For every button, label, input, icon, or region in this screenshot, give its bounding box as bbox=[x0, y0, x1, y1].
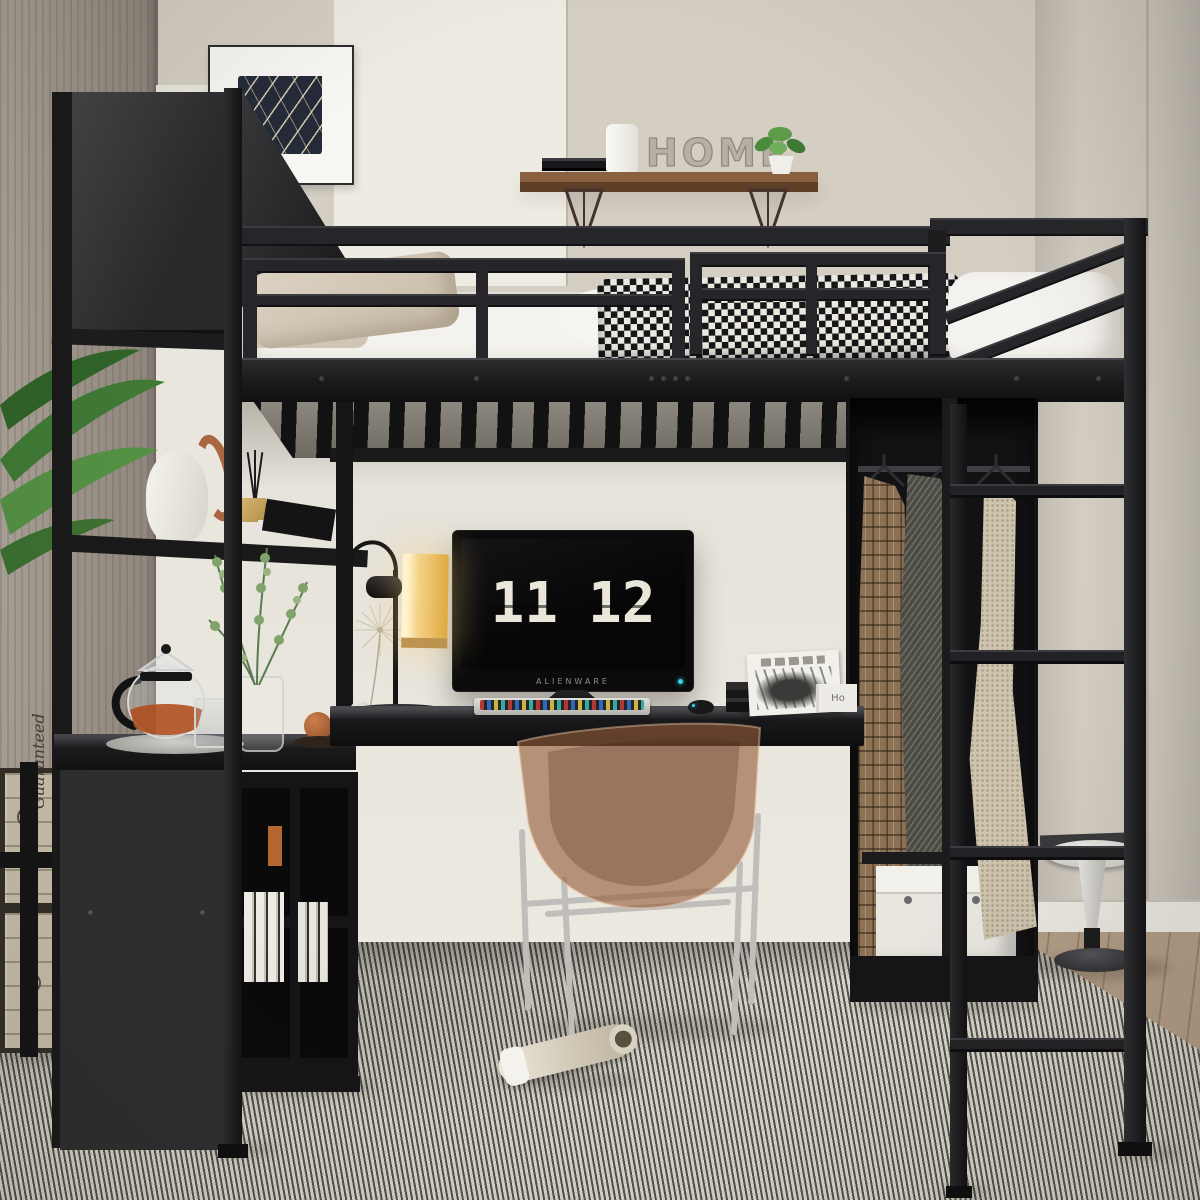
white-books bbox=[244, 892, 284, 982]
guardrail-stile bbox=[806, 252, 817, 356]
screw bbox=[200, 910, 206, 916]
monitor-screen: 11 12 bbox=[461, 539, 685, 669]
power-led bbox=[678, 679, 683, 684]
rivet bbox=[844, 376, 850, 382]
box-clasp bbox=[904, 896, 912, 904]
wardrobe-base bbox=[850, 956, 1038, 1002]
box-clasp bbox=[972, 896, 980, 904]
rivet bbox=[319, 376, 325, 382]
rivet bbox=[685, 376, 691, 382]
ladder-rail bbox=[950, 404, 967, 1192]
bed-top-rail bbox=[225, 226, 950, 246]
rivet bbox=[673, 376, 679, 382]
white-book: Ho bbox=[816, 684, 857, 712]
monitor-brand-label: ALIENWARE bbox=[453, 677, 693, 686]
flip-clock-hours: 11 bbox=[491, 576, 558, 632]
guardrail-stile bbox=[690, 252, 702, 356]
tower-cabinet-bottom bbox=[60, 760, 236, 1150]
rivet bbox=[474, 376, 480, 382]
white-books bbox=[298, 902, 328, 982]
rivet bbox=[1014, 376, 1020, 382]
bedroom-photo: HOME Guaranteed Guaranteed bbox=[0, 0, 1200, 1200]
ladder-rung bbox=[950, 650, 1146, 664]
white-canister bbox=[606, 124, 638, 172]
frame-bar bbox=[20, 762, 38, 1057]
orange-book bbox=[268, 826, 282, 866]
wall-corner bbox=[1146, 0, 1149, 905]
ladder-rung bbox=[950, 846, 1146, 860]
flip-clock-minutes: 12 bbox=[588, 576, 655, 632]
screw bbox=[88, 910, 94, 916]
magazine-text-lines bbox=[761, 655, 825, 666]
bed-deck bbox=[224, 358, 1142, 402]
reed-diffuser bbox=[242, 498, 266, 522]
keyboard-keys bbox=[480, 700, 644, 710]
cubby bbox=[300, 788, 348, 916]
lamp-joint bbox=[366, 576, 402, 598]
guardrail-stile bbox=[476, 258, 488, 364]
wardrobe-shelf bbox=[862, 852, 954, 864]
guardrail-stile bbox=[672, 258, 685, 364]
ladder-rung bbox=[950, 1038, 1146, 1052]
rivet bbox=[661, 376, 667, 382]
right-wall bbox=[1035, 0, 1200, 945]
bed-post bbox=[1124, 218, 1146, 1148]
acrylic-chair bbox=[488, 712, 780, 1042]
tower-cabinet-top bbox=[56, 92, 236, 334]
post-foot bbox=[218, 1144, 248, 1158]
cube-shelf-base bbox=[228, 1076, 360, 1092]
bed-side-rail bbox=[930, 218, 1148, 236]
post-foot bbox=[1118, 1142, 1152, 1156]
guardrail bbox=[243, 258, 685, 273]
rivet bbox=[649, 376, 655, 382]
bed-post bbox=[224, 88, 242, 1150]
ladder-foot bbox=[946, 1186, 972, 1198]
gaming-monitor: 11 12 ALIENWARE bbox=[452, 530, 694, 692]
lamp-shade bbox=[401, 554, 449, 649]
guardrail-stile bbox=[243, 258, 257, 364]
rivet bbox=[1096, 376, 1102, 382]
guardrail bbox=[243, 294, 685, 307]
book-spine-text: Ho bbox=[831, 693, 845, 704]
guardrail-stile bbox=[930, 252, 946, 356]
ladder-rung bbox=[950, 484, 1146, 498]
